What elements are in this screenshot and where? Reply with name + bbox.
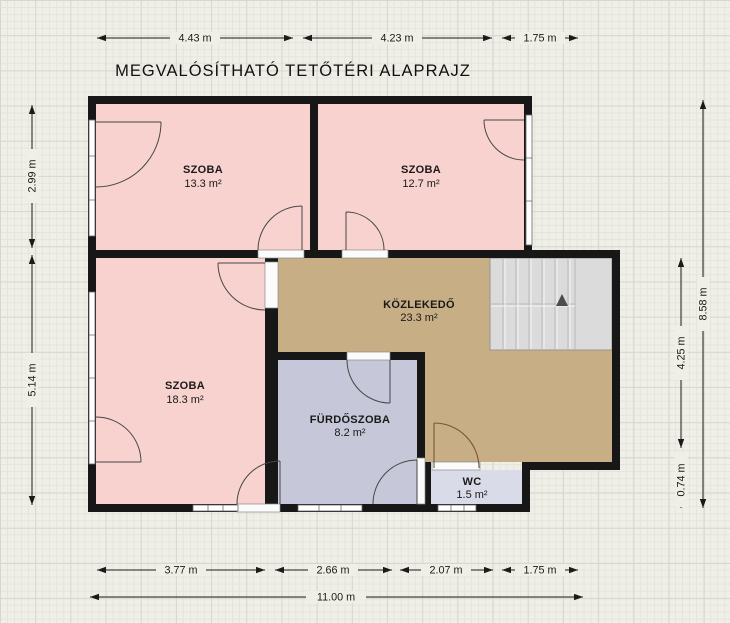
label-szoba12-name: SZOBA xyxy=(401,164,441,176)
dim-right-inner-2: 0.74 m xyxy=(676,463,688,496)
threshold-bathroom xyxy=(347,352,390,360)
wall-corridor-bottom xyxy=(530,462,620,470)
label-szoba18-name: SZOBA xyxy=(165,380,205,392)
label-corridor-area: 23.3 m² xyxy=(400,312,438,324)
room-szoba-13-fill xyxy=(96,104,310,250)
label-bathroom-area: 8.2 m² xyxy=(334,427,366,439)
window-szoba18-bottom xyxy=(193,505,238,511)
window-szoba12-right xyxy=(526,115,532,245)
label-wc-name: WC xyxy=(463,476,482,488)
window-szoba13-left xyxy=(89,120,95,236)
label-corridor-name: KÖZLEKEDŐ xyxy=(383,298,455,311)
label-szoba18-area: 18.3 m² xyxy=(166,394,204,406)
threshold-szoba18-bottom xyxy=(237,504,280,512)
dim-top-3: 1.75 m xyxy=(523,33,556,45)
wall-top xyxy=(88,96,532,104)
dim-right-outer: 8.58 m xyxy=(698,287,710,320)
window-bathroom-bottom xyxy=(298,505,362,511)
label-szoba13-name: SZOBA xyxy=(183,164,223,176)
label-szoba13-area: 13.3 m² xyxy=(184,178,222,190)
staircase xyxy=(490,258,612,350)
dim-bottom-total: 11.00 m xyxy=(317,592,355,604)
floor-plan-svg: MEGVALÓSÍTHATÓ TETŐTÉRI ALAPRAJZ SZOBA 1… xyxy=(0,0,730,623)
wall-corridor-right xyxy=(612,250,620,470)
threshold-szoba18 xyxy=(265,262,278,308)
floor-plan-canvas: MEGVALÓSÍTHATÓ TETŐTÉRI ALAPRAJZ SZOBA 1… xyxy=(0,0,730,623)
wall-top-rooms-divider xyxy=(310,104,318,250)
wall-wc-right xyxy=(522,462,530,512)
dim-bottom-1: 3.77 m xyxy=(164,565,197,577)
corridor-fill-lower xyxy=(425,352,612,462)
plan-title: MEGVALÓSÍTHATÓ TETŐTÉRI ALAPRAJZ xyxy=(115,61,471,80)
label-wc-area: 1.5 m² xyxy=(456,489,488,501)
window-wc-bottom xyxy=(438,505,476,511)
dim-top-2: 4.23 m xyxy=(380,33,413,45)
dim-bottom-4: 1.75 m xyxy=(523,565,556,577)
threshold-wc xyxy=(432,462,480,470)
threshold-szoba12 xyxy=(342,250,388,258)
threshold-szoba13 xyxy=(258,250,304,258)
dim-right-inner-1: 4.25 m xyxy=(676,336,688,369)
dim-left-1: 2.99 m xyxy=(27,159,39,192)
dim-bottom-3: 2.07 m xyxy=(429,565,462,577)
threshold-bathroom-bottom xyxy=(417,458,425,504)
dim-bottom-2: 2.66 m xyxy=(316,565,349,577)
dim-top-1: 4.43 m xyxy=(178,33,211,45)
dim-left-2: 5.14 m xyxy=(27,363,39,396)
room-szoba-12-fill xyxy=(318,104,524,250)
label-bathroom-name: FÜRDŐSZOBA xyxy=(310,413,391,426)
label-szoba12-area: 12.7 m² xyxy=(402,178,440,190)
